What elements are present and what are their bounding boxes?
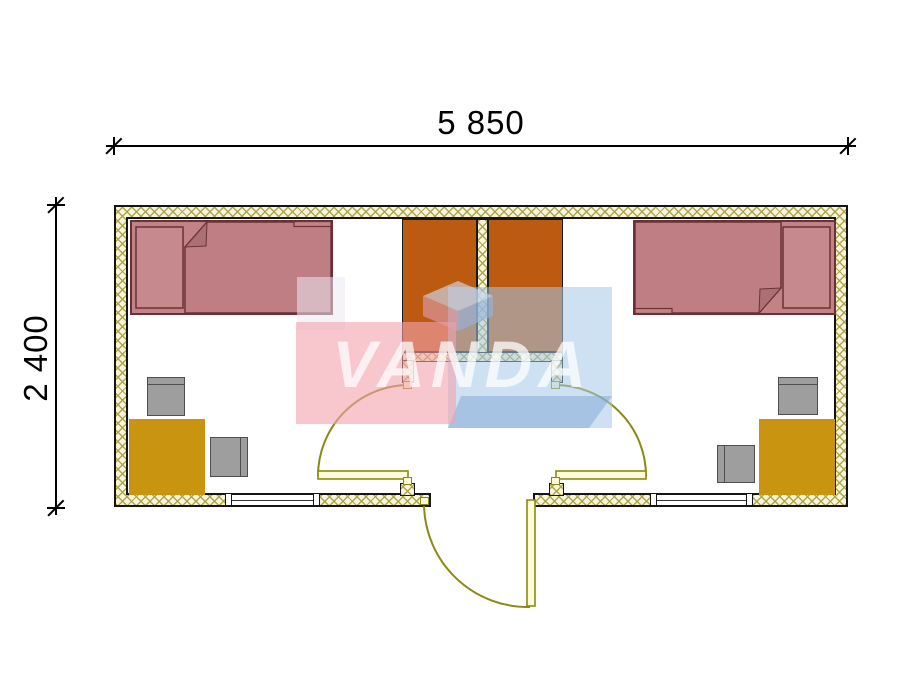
doors-layer <box>0 0 924 700</box>
door-leaf-entry <box>527 500 535 606</box>
door-hinge-block <box>403 477 412 485</box>
door-swing-arc-left <box>318 385 409 476</box>
door-swing-arc-right <box>555 385 646 476</box>
door-swing-arc-entry <box>424 506 530 607</box>
door-hinge-block <box>551 477 560 485</box>
door-strike-block <box>403 381 412 389</box>
door-strike-block <box>420 497 429 505</box>
floor-plan-canvas: 5 850 2 400 <box>0 0 924 700</box>
door-leaf-left <box>318 471 408 479</box>
door-leaf-right <box>556 471 646 479</box>
door-strike-block <box>551 381 560 389</box>
